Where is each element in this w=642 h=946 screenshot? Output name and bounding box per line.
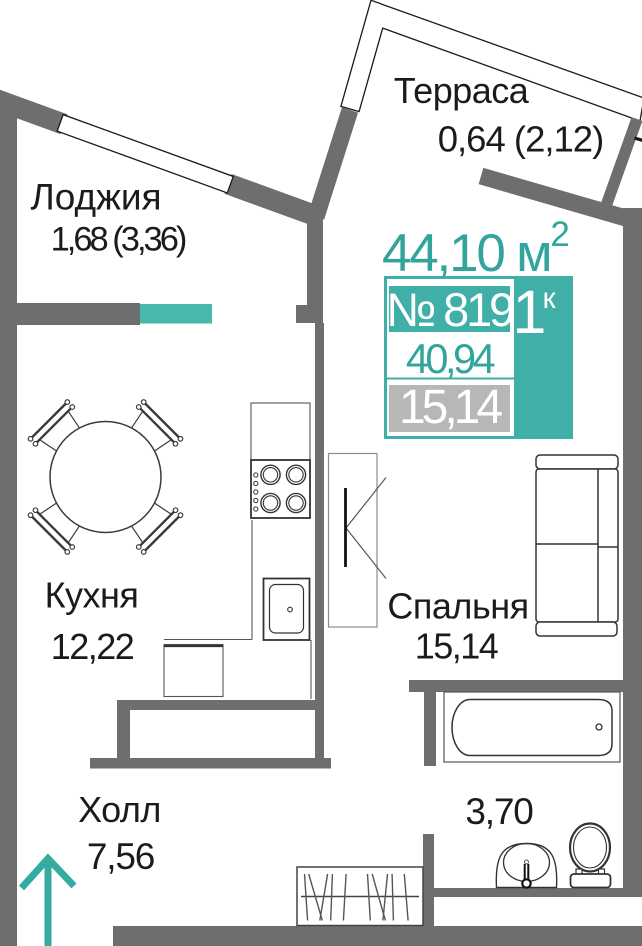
svg-text:№ 819: № 819 <box>386 283 513 336</box>
svg-text:12,22: 12,22 <box>51 626 134 667</box>
svg-text:Терраса: Терраса <box>394 70 530 111</box>
svg-text:к: к <box>542 282 556 315</box>
svg-text:15,14: 15,14 <box>399 381 502 434</box>
svg-text:40,94: 40,94 <box>406 335 495 382</box>
svg-text:Лоджия: Лоджия <box>30 177 161 218</box>
svg-text:Кухня: Кухня <box>45 575 139 616</box>
svg-text:Холл: Холл <box>78 789 161 830</box>
svg-text:1,68 (3,36): 1,68 (3,36) <box>51 221 186 259</box>
svg-text:0,64 (2,12): 0,64 (2,12) <box>438 119 604 160</box>
svg-text:44,10 м2: 44,10 м2 <box>382 215 568 283</box>
svg-text:3,70: 3,70 <box>465 791 533 832</box>
svg-text:1: 1 <box>513 278 547 346</box>
svg-text:15,14: 15,14 <box>415 626 498 667</box>
svg-text:Спальня: Спальня <box>387 586 528 627</box>
svg-text:7,56: 7,56 <box>87 836 154 877</box>
